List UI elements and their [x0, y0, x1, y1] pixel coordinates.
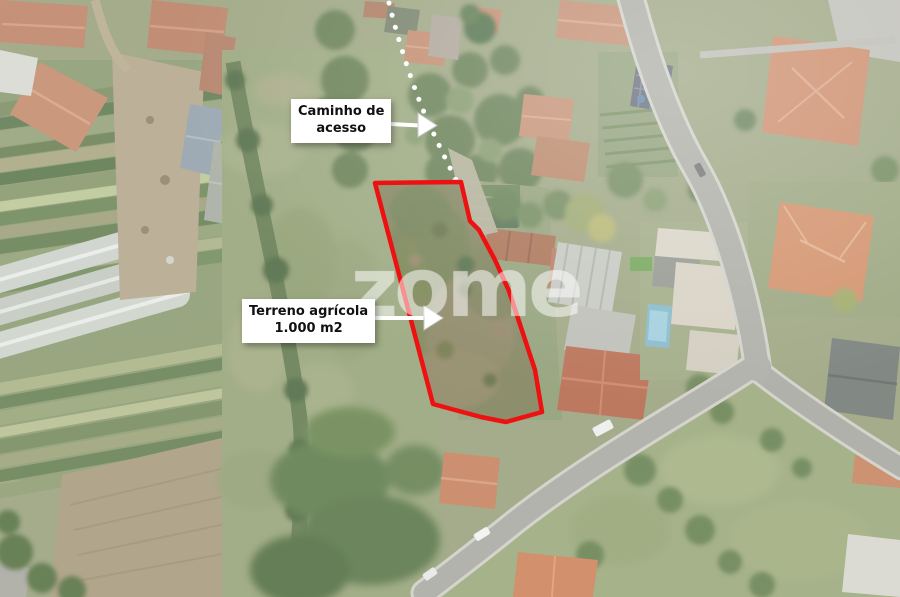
photo-haze-gradient	[0, 0, 900, 597]
access-path-label-line1: Caminho de	[298, 104, 384, 121]
access-path-label: Caminho de acesso	[291, 99, 391, 143]
access-path-label-line2: acesso	[298, 121, 384, 138]
aerial-listing-image: zome Caminho de acesso Terreno agrícola …	[0, 0, 900, 597]
aerial-photo	[0, 0, 900, 597]
parcel-label-line2: 1.000 m2	[249, 321, 368, 338]
parcel-label-line1: Terreno agrícola	[249, 304, 368, 321]
parcel-area-label: Terreno agrícola 1.000 m2	[242, 299, 375, 343]
